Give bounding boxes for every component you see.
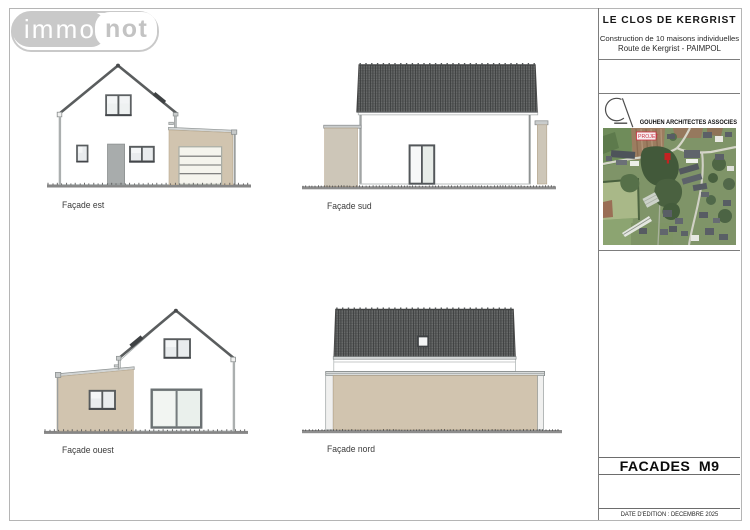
svg-text:PROJET: PROJET <box>638 134 659 140</box>
